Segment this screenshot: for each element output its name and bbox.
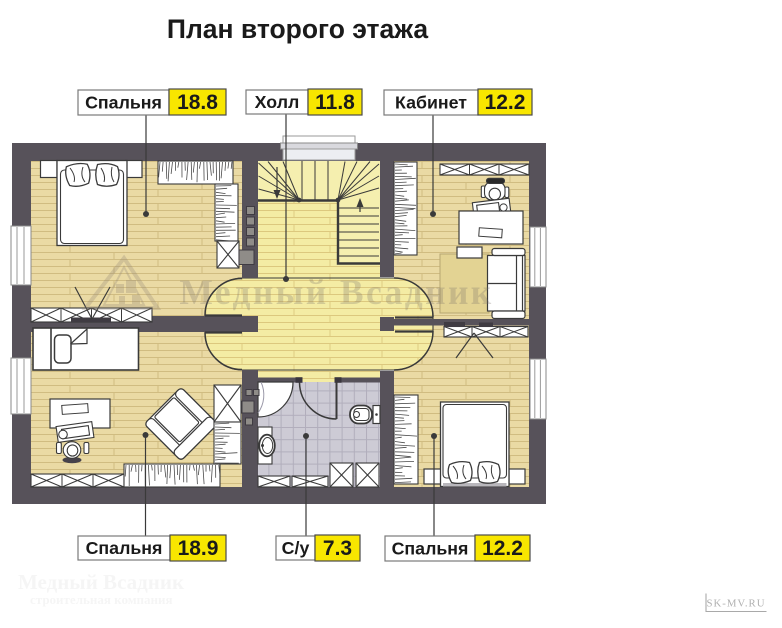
svg-text:11.8: 11.8 bbox=[315, 91, 355, 114]
svg-text:18.9: 18.9 bbox=[178, 537, 219, 560]
svg-text:Спальня: Спальня bbox=[86, 538, 163, 558]
svg-text:Спальня: Спальня bbox=[85, 93, 162, 113]
svg-text:7.3: 7.3 bbox=[323, 537, 352, 560]
svg-text:12.2: 12.2 bbox=[482, 537, 523, 560]
svg-text:12.2: 12.2 bbox=[485, 91, 526, 114]
svg-text:строительная компания: строительная компания bbox=[30, 592, 173, 607]
svg-text:С/у: С/у bbox=[282, 538, 310, 558]
svg-text:18.8: 18.8 bbox=[177, 91, 218, 114]
svg-text:SK-MV.RU: SK-MV.RU bbox=[706, 598, 765, 610]
svg-text:Спальня: Спальня bbox=[392, 539, 469, 559]
svg-text:Холл: Холл bbox=[255, 92, 300, 112]
svg-text:Медный Всадник: Медный Всадник bbox=[18, 570, 185, 594]
svg-text:Медный Всадник: Медный Всадник bbox=[179, 272, 493, 312]
svg-text:План второго этажа: План второго этажа bbox=[167, 14, 428, 44]
svg-text:Кабинет: Кабинет bbox=[395, 93, 467, 113]
